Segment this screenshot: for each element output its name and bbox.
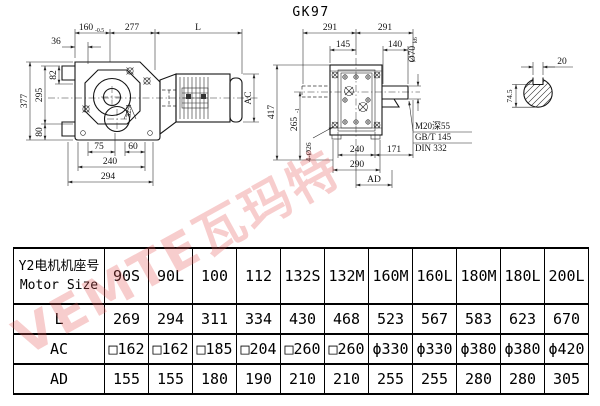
table-cell: 280 [457,364,501,394]
dim-240-rear: 240 [350,145,365,155]
table-cell: □260 [325,334,369,364]
dim-4xd26: 4-Ø26 [304,142,313,161]
shaft-section-detail: 20 74.5 [494,57,582,113]
motor-size-header-en: Motor Size [14,277,104,295]
motor-size-header-cell: Y2电机机座号Motor Size [14,248,105,304]
bolt-icon [81,68,153,136]
table-cell: 623 [501,304,545,334]
dim-82: 82 [49,70,59,80]
dim-377: 377 [20,94,30,109]
dim-265: 265 [290,117,300,132]
dim-32-3: 32.3 [124,104,133,117]
table-cell: 311 [193,304,237,334]
table-cell: 294 [149,304,193,334]
right-view-dimensions: 291 291 145 140 Ø70 k6 417 265 -1 4-Ø26 … [267,23,472,188]
dim-277: 277 [125,23,140,33]
table-cell: 468 [325,304,369,334]
table-cell: 305 [545,364,589,394]
table-row: L269294311334430468523567583623670 [14,304,589,334]
dim-265-tol: -1 [295,108,301,113]
dim-291-left: 291 [323,23,338,33]
dim-AC: AC [244,91,254,104]
table-cell: ϕ380 [457,334,501,364]
table-cell: 334 [237,304,281,334]
table-cell: 430 [281,304,325,334]
column-header-200L: 200L [545,248,589,304]
table-cell: □260 [281,334,325,364]
table-cell: □204 [237,334,281,364]
motor-size-header-cn: Y2电机机座号 [14,257,104,277]
column-header-90S: 90S [105,248,149,304]
dim-291-right: 291 [378,23,393,33]
table-cell: 155 [105,364,149,394]
dim-shaft-fit: k6 [413,37,419,43]
dim-key-width: 20 [557,57,567,67]
column-header-160M: 160M [369,248,413,304]
table-cell: ϕ380 [501,334,545,364]
table-cell: □162 [105,334,149,364]
table-row: AC□162□162□185□204□260□260ϕ330ϕ330ϕ380ϕ3… [14,334,589,364]
note-thread: M20深55 [415,121,451,131]
table-cell: 670 [545,304,589,334]
dim-74-5: 74.5 [505,89,514,102]
note-gbt: GB/T 145 [415,132,452,142]
drawing-title: GK97 [292,5,329,20]
row-label-L: L [14,304,105,334]
note-din: DIN 332 [415,143,447,153]
column-header-180L: 180L [501,248,545,304]
column-header-132S: 132S [281,248,325,304]
column-header-90L: 90L [149,248,193,304]
column-header-160L: 160L [413,248,457,304]
row-label-AC: AC [14,334,105,364]
dim-417: 417 [267,105,277,120]
technical-drawing: GK97 [0,0,600,244]
table-cell: □185 [193,334,237,364]
dim-140: 140 [388,40,403,50]
table-cell: 255 [369,364,413,394]
table-cell: 255 [413,364,457,394]
column-header-100: 100 [193,248,237,304]
dim-75: 75 [94,142,104,152]
dim-80: 80 [35,127,45,137]
dim-160-tol: -0.5 [95,28,104,34]
dim-295: 295 [35,88,45,103]
motor-dimension-table: Y2电机机座号Motor Size90S90L100112132S132M160… [13,247,589,395]
table-cell: □162 [149,334,193,364]
left-view-geometry [48,62,258,140]
table-cell: 210 [281,364,325,394]
column-header-112: 112 [237,248,281,304]
table-cell: 583 [457,304,501,334]
table-row: AD155155180190210210255255280280305 [14,364,589,394]
table-header-row: Y2电机机座号Motor Size90S90L100112132S132M160… [14,248,589,304]
table-cell: 567 [413,304,457,334]
table-cell: 210 [325,364,369,394]
column-header-132M: 132M [325,248,369,304]
dim-L: L [195,23,201,33]
table-cell: 180 [193,364,237,394]
dim-171: 171 [387,145,402,155]
dim-294: 294 [101,172,116,182]
table-cell: 190 [237,364,281,394]
table-cell: ϕ330 [413,334,457,364]
dim-36: 36 [51,37,61,47]
table-cell: 523 [369,304,413,334]
table-cell: 280 [501,364,545,394]
right-view-geometry [294,58,420,148]
table-cell: ϕ330 [369,334,413,364]
dim-AD: AD [367,175,381,185]
column-header-180M: 180M [457,248,501,304]
dim-145: 145 [336,40,351,50]
row-label-AD: AD [14,364,105,394]
table-cell: ϕ420 [545,334,589,364]
dim-160: 160 [79,23,94,33]
dim-shaft-dia: Ø70 [408,46,418,63]
dim-290: 290 [350,160,365,170]
table-cell: 155 [149,364,193,394]
datasheet-page: GK97 [0,0,600,406]
dim-240: 240 [103,157,118,167]
dim-60: 60 [128,142,138,152]
table-cell: 269 [105,304,149,334]
